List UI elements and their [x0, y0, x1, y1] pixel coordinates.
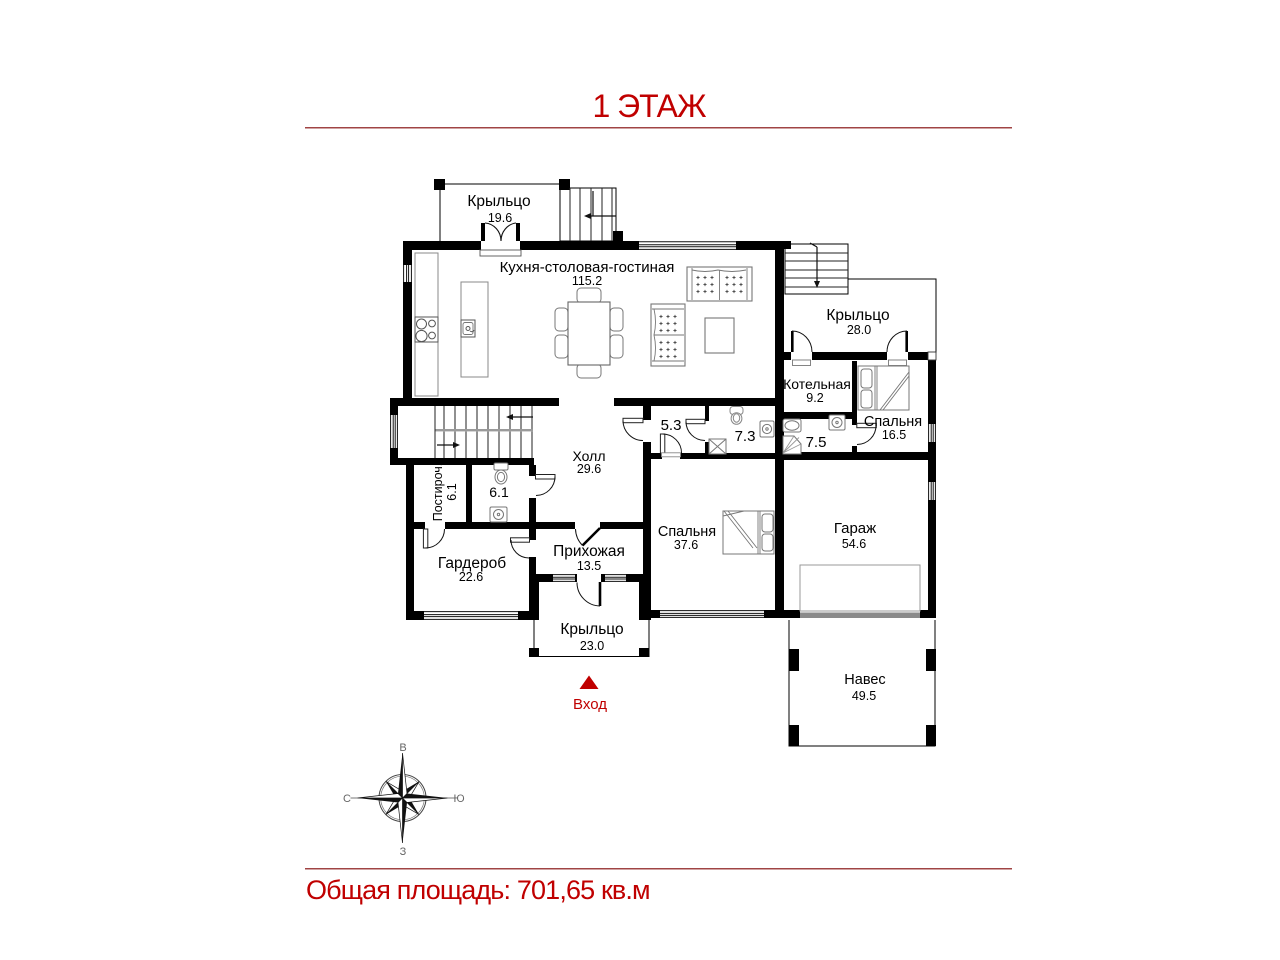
svg-text:22.6: 22.6 — [459, 570, 483, 584]
svg-text:Котельная: Котельная — [783, 376, 851, 392]
svg-text:13.5: 13.5 — [577, 559, 601, 573]
svg-text:С: С — [343, 793, 351, 805]
svg-text:7.3: 7.3 — [735, 428, 756, 445]
svg-text:7.5: 7.5 — [806, 434, 827, 451]
svg-text:Гараж: Гараж — [834, 520, 876, 537]
svg-text:Вход: Вход — [573, 696, 607, 713]
svg-text:Крыльцо: Крыльцо — [826, 307, 889, 324]
svg-text:9.2: 9.2 — [806, 391, 823, 405]
svg-text:В: В — [399, 742, 406, 754]
svg-text:19.6: 19.6 — [488, 211, 512, 225]
svg-text:Крыльцо: Крыльцо — [467, 193, 530, 210]
svg-text:Постироч.: Постироч. — [431, 463, 445, 522]
svg-text:5.3: 5.3 — [661, 417, 682, 434]
svg-text:16.5: 16.5 — [882, 428, 906, 442]
svg-text:Крыльцо: Крыльцо — [560, 621, 623, 638]
svg-text:6.1: 6.1 — [445, 483, 459, 500]
svg-text:115.2: 115.2 — [572, 274, 602, 288]
svg-text:Ю: Ю — [453, 793, 464, 805]
svg-text:28.0: 28.0 — [847, 323, 871, 337]
svg-text:З: З — [400, 846, 407, 858]
svg-text:Общая площадь: 701,65 кв.м: Общая площадь: 701,65 кв.м — [306, 875, 650, 905]
svg-text:29.6: 29.6 — [577, 462, 601, 476]
svg-text:Прихожая: Прихожая — [553, 543, 625, 560]
svg-text:Навес: Навес — [844, 672, 885, 688]
svg-text:54.6: 54.6 — [842, 537, 866, 551]
svg-text:1 ЭТАЖ: 1 ЭТАЖ — [592, 88, 707, 124]
svg-text:23.0: 23.0 — [580, 639, 604, 653]
svg-text:49.5: 49.5 — [852, 689, 876, 703]
svg-text:6.1: 6.1 — [489, 484, 509, 500]
svg-text:37.6: 37.6 — [674, 538, 698, 552]
